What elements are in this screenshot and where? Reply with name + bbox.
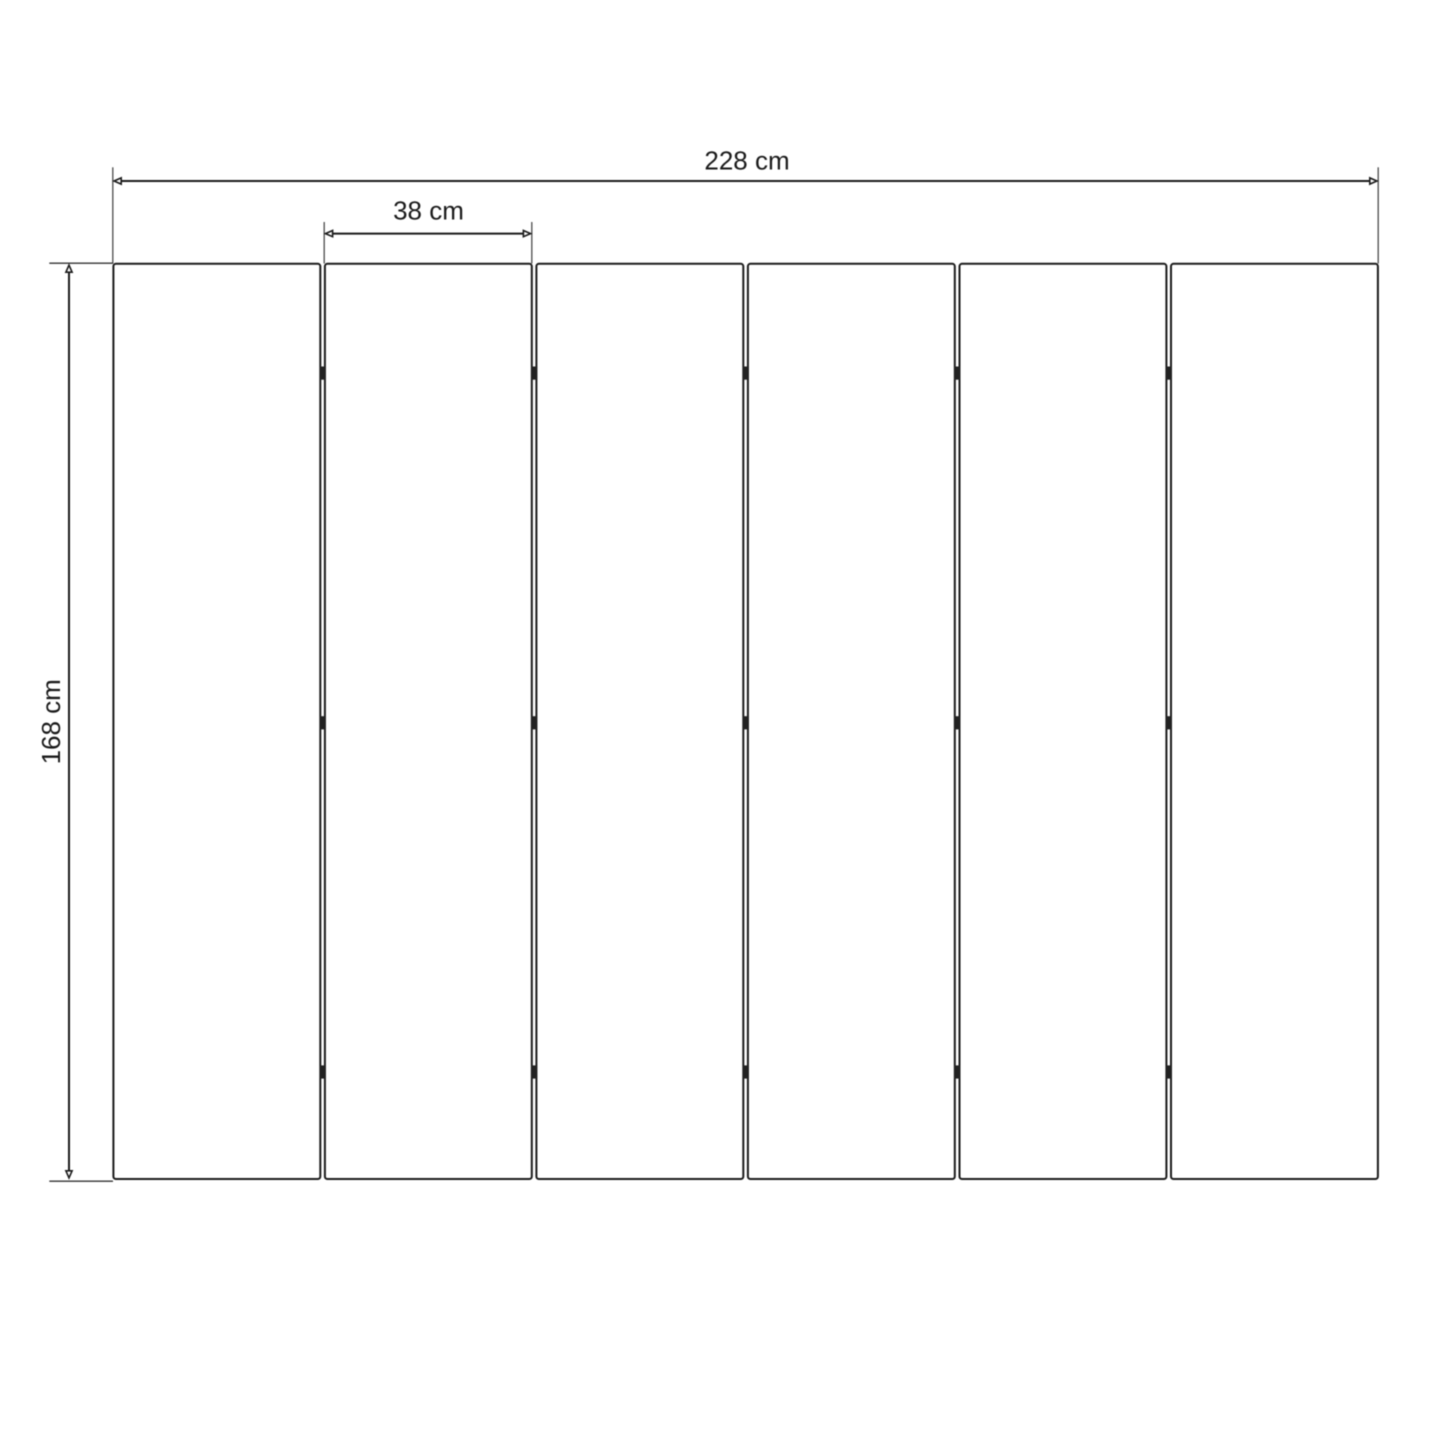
svg-text:38 cm: 38 cm [393, 196, 464, 226]
svg-text:228 cm: 228 cm [704, 146, 789, 176]
svg-text:168 cm: 168 cm [36, 679, 66, 764]
